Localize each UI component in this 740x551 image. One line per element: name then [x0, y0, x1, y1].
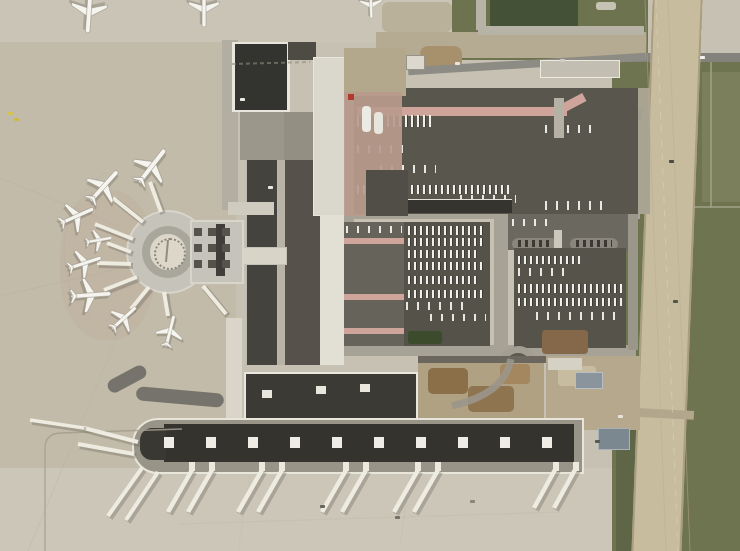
cars-row: [545, 125, 591, 133]
pink-band: [344, 328, 406, 334]
cars-row: [512, 219, 554, 226]
skylight: [194, 244, 202, 252]
skylight: [208, 244, 216, 252]
cars-row: [406, 302, 468, 310]
small-building-top: [406, 55, 425, 70]
dirt-patch-se: [542, 330, 588, 354]
connector-road-south: [226, 318, 242, 426]
cars-row: [430, 314, 486, 321]
cars-row: [518, 256, 580, 264]
dirt-center: [344, 48, 406, 96]
tank: [374, 112, 383, 134]
roof-chip: [360, 384, 370, 392]
tank: [362, 106, 371, 132]
skylight: [208, 228, 216, 236]
pink-band: [344, 238, 406, 244]
hedge: [408, 331, 442, 344]
road-east-upper: [638, 88, 650, 214]
terminal-mid-block: [284, 112, 314, 160]
dirt-patch: [428, 368, 468, 394]
cars-row: [408, 226, 486, 235]
blue-roof-building: [575, 372, 603, 389]
road-curve-v: [476, 0, 486, 30]
field-boundary-v: [710, 62, 712, 208]
terminal-panel-block: [240, 112, 290, 160]
cars-row: [408, 290, 486, 298]
cars-row: [346, 226, 402, 233]
cars-row: [518, 240, 552, 247]
cars-row: [408, 262, 486, 270]
terminal-solar-roof: [235, 44, 287, 110]
skylight: [194, 228, 202, 236]
construction-dark-edge: [418, 356, 546, 363]
cars-row: [545, 201, 607, 210]
road-east-lower: [628, 214, 638, 350]
cars-row: [518, 298, 622, 306]
cars-row: [518, 268, 570, 276]
connector-east: [238, 248, 286, 264]
bus-shelter-row: [540, 60, 620, 78]
cars-row: [518, 284, 622, 293]
pink-band: [344, 294, 406, 300]
terminal-dark-block-top: [288, 42, 316, 60]
cars-row: [408, 238, 486, 246]
skylight: [222, 228, 230, 236]
skylight: [194, 260, 202, 268]
road-mid-vertical: [494, 214, 508, 350]
field-patch-light: [702, 72, 740, 202]
road-top-light: [478, 26, 644, 35]
pier-gate-chips: [164, 437, 574, 448]
road-junction-spot: [596, 2, 616, 10]
terminal-annex-roof: [366, 170, 408, 216]
skylight: [222, 260, 230, 268]
dirt-top-patch: [382, 2, 452, 32]
cars-row: [408, 276, 480, 284]
cars-row: [536, 312, 624, 320]
aerial-photo-airport: [0, 0, 740, 551]
terminal-white-hall: [314, 58, 344, 215]
dirt-patch: [500, 364, 530, 384]
white-building-south: [548, 358, 582, 370]
cars-row: [576, 240, 612, 247]
apron-bottom: [0, 468, 660, 551]
connector-north: [228, 202, 274, 215]
roof-chip: [262, 390, 272, 398]
blue-roof-building: [598, 428, 630, 450]
dirt-patch: [468, 386, 514, 412]
terminal-vaulted-hall: [320, 215, 344, 365]
red-container: [348, 94, 354, 100]
annex-skylight-grid: [194, 228, 230, 274]
satellite-dome-ring: [154, 238, 186, 270]
skylight: [208, 260, 216, 268]
skylight: [222, 244, 230, 252]
pier-cap-roof: [140, 428, 166, 460]
roof-chip: [316, 386, 326, 394]
cars-row: [408, 250, 478, 258]
walkway-north: [554, 98, 564, 138]
